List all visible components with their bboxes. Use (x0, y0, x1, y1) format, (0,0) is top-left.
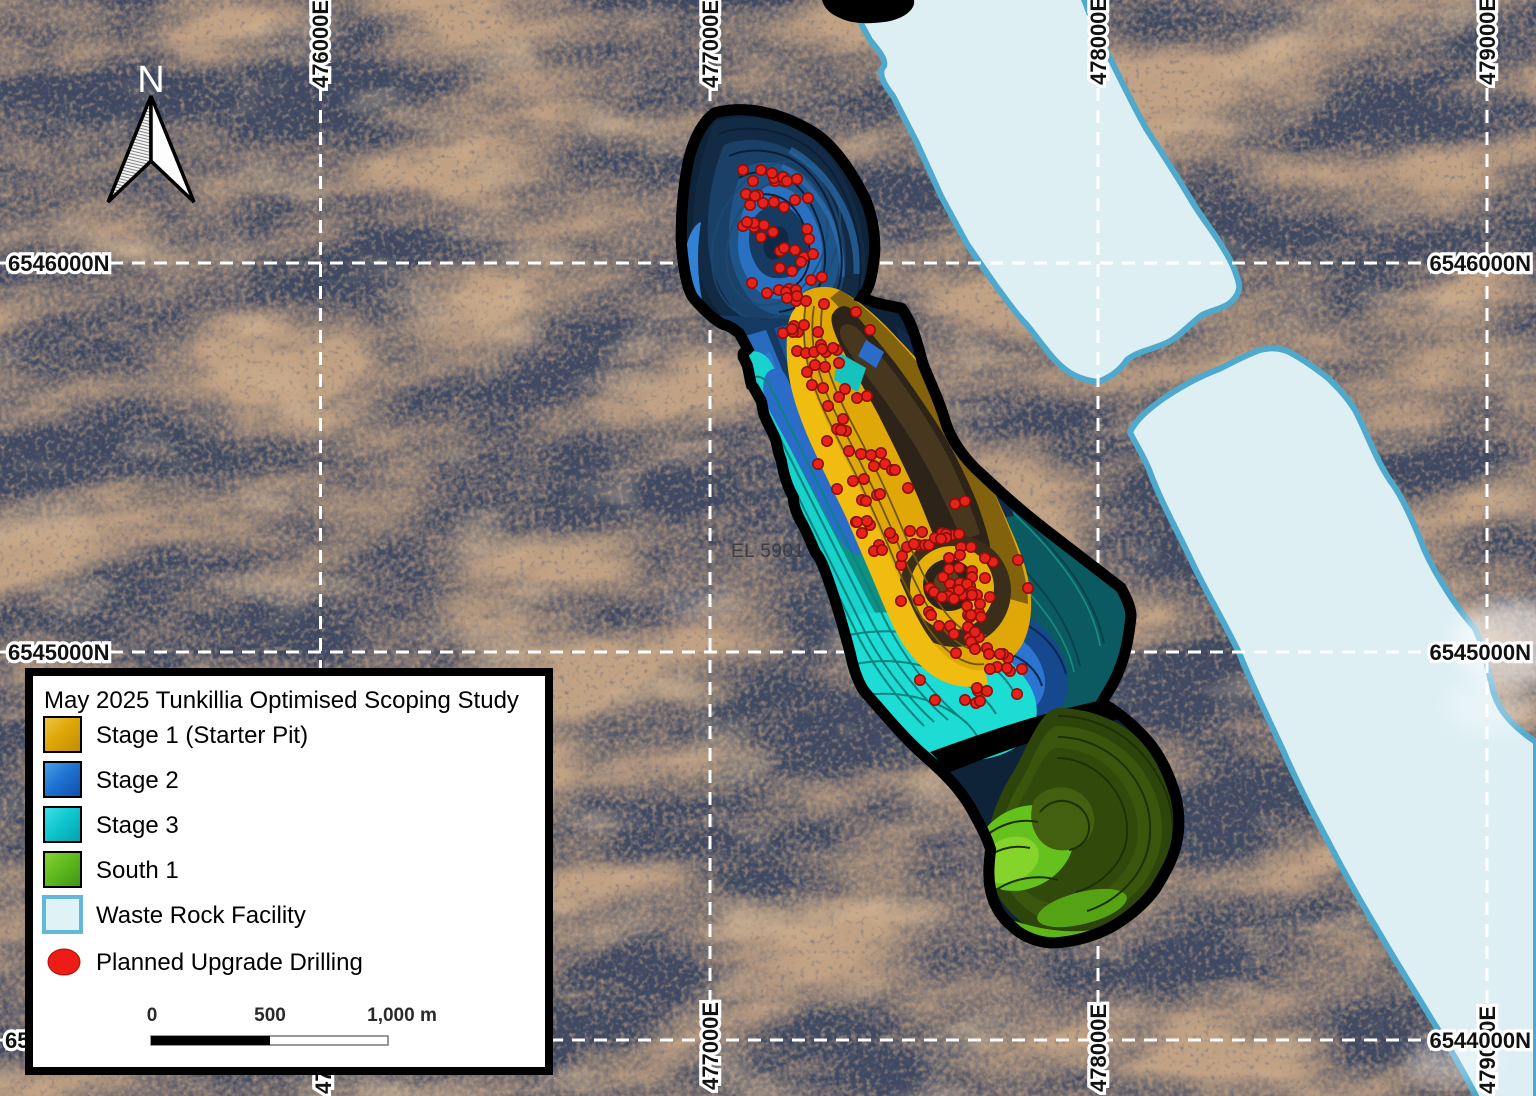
svg-text:N: N (137, 59, 164, 101)
svg-text:6544000N: 6544000N (1429, 1028, 1531, 1053)
svg-text:1,000 m: 1,000 m (367, 1005, 437, 1026)
svg-text:6546000N: 6546000N (1429, 251, 1531, 276)
svg-text:500: 500 (254, 1005, 286, 1026)
svg-text:477000E: 477000E (698, 0, 723, 88)
svg-text:6545000N: 6545000N (8, 640, 110, 665)
svg-text:477000E: 477000E (698, 1002, 723, 1090)
svg-text:478000E: 478000E (1086, 1004, 1111, 1092)
svg-text:Planned Upgrade Drilling: Planned Upgrade Drilling (96, 949, 363, 976)
svg-text:476000E: 476000E (308, 0, 333, 88)
svg-text:Waste Rock Facility: Waste Rock Facility (96, 902, 306, 929)
svg-text:EL 5901: EL 5901 (731, 541, 805, 562)
svg-text:479000E: 479000E (1475, 0, 1500, 85)
svg-text:Stage 3: Stage 3 (96, 812, 179, 839)
svg-text:South 1: South 1 (96, 857, 179, 884)
svg-text:Stage 2: Stage 2 (96, 767, 179, 794)
svg-text:6546000N: 6546000N (8, 251, 110, 276)
svg-text:6545000N: 6545000N (1429, 640, 1531, 665)
svg-text:0: 0 (147, 1005, 158, 1026)
svg-text:Stage 1 (Starter Pit): Stage 1 (Starter Pit) (96, 722, 308, 749)
svg-text:478000E: 478000E (1086, 0, 1111, 85)
svg-text:May 2025 Tunkillia Optimised S: May 2025 Tunkillia Optimised Scoping Stu… (44, 687, 519, 714)
